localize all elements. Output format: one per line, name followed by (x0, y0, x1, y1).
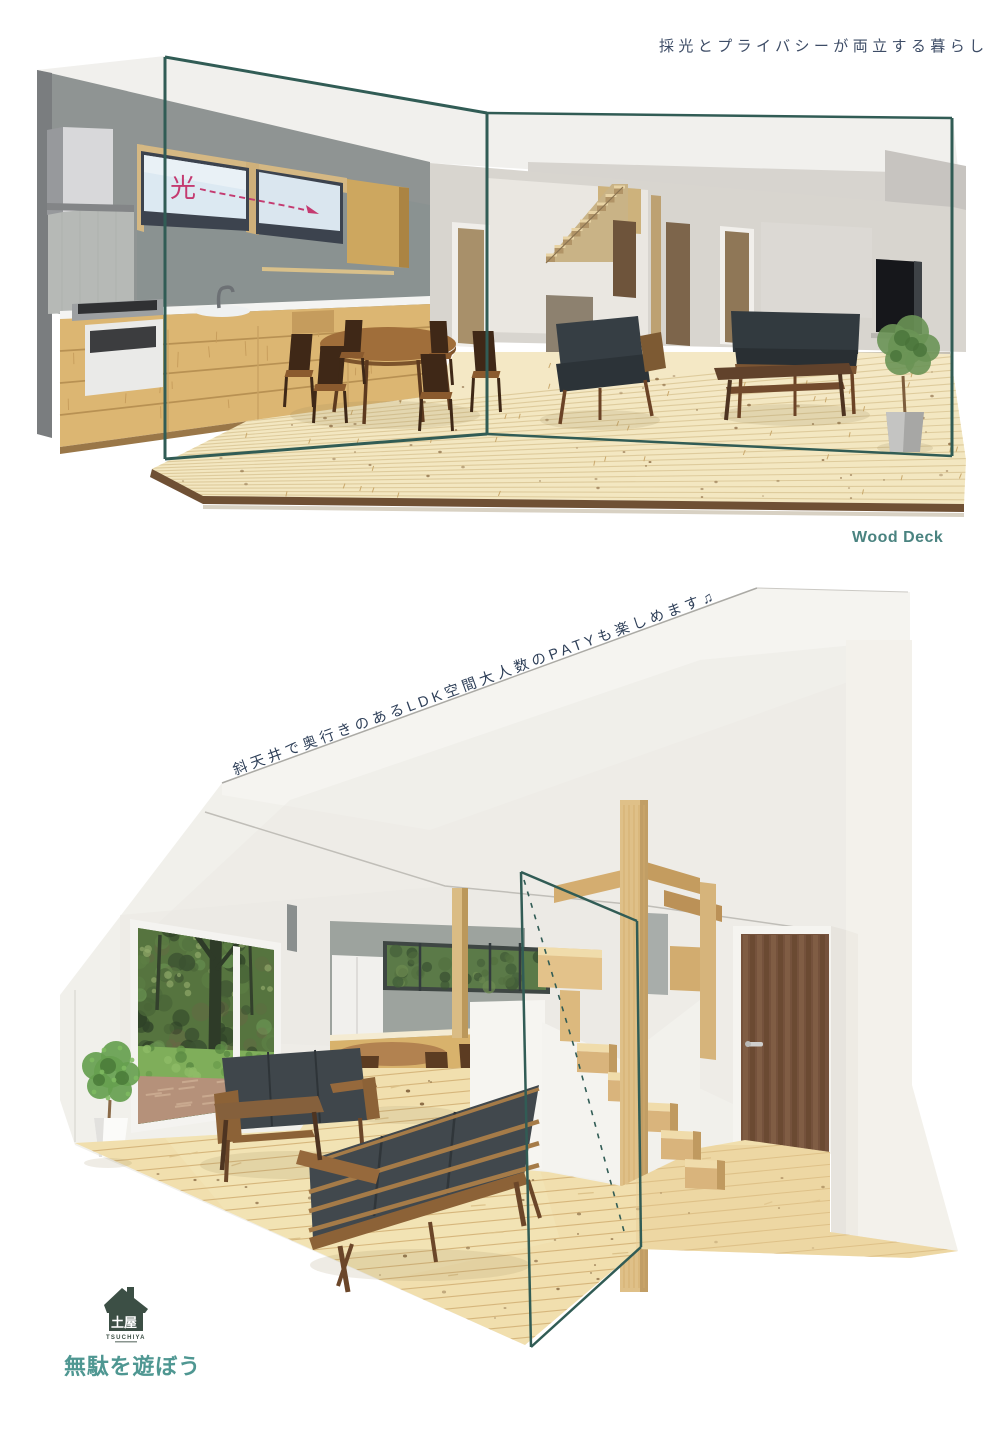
svg-text:光: 光 (170, 173, 196, 203)
svg-text:無駄を遊ぼう: 無駄を遊ぼう (64, 1354, 201, 1379)
svg-text:土屋: 土屋 (111, 1315, 137, 1330)
svg-text:採光とプライバシーが両立する暮らし: 採光とプライバシーが両立する暮らし (659, 38, 989, 55)
svg-text:TSUCHIYA: TSUCHIYA (106, 1335, 146, 1341)
svg-text:Wood Deck: Wood Deck (852, 529, 943, 546)
